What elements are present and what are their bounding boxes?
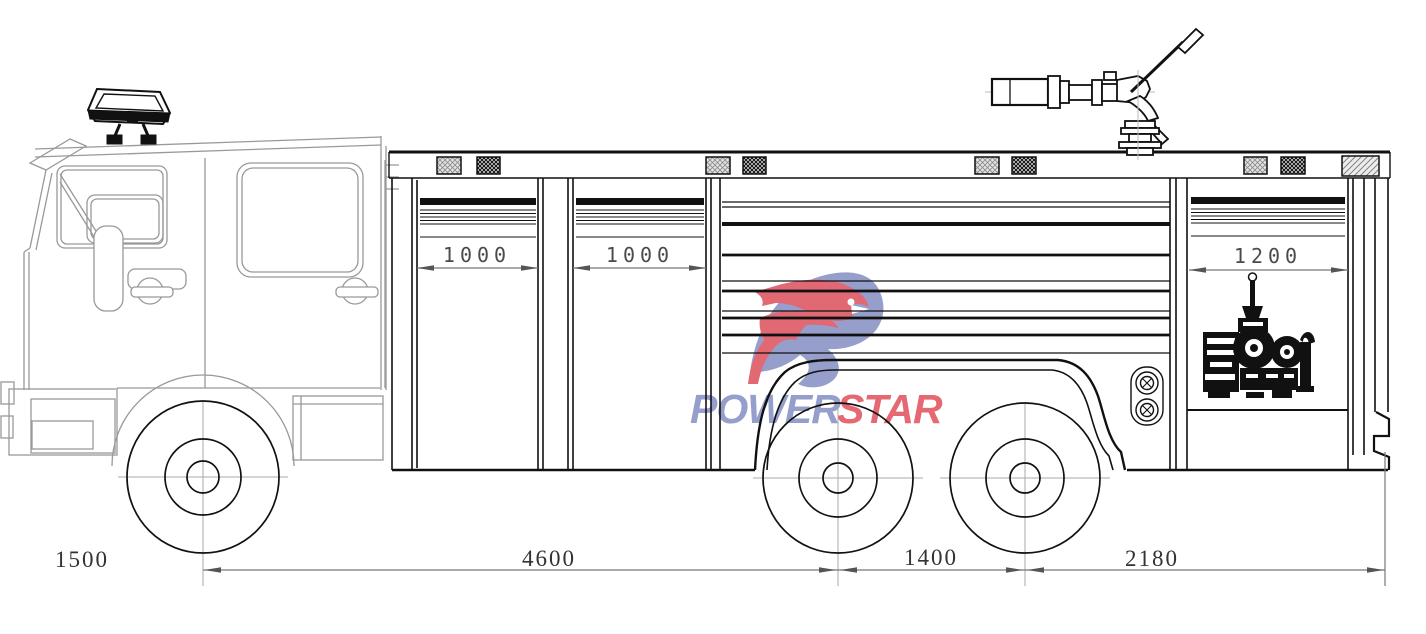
front-bumper bbox=[1, 382, 117, 455]
door-handle-bar bbox=[336, 287, 378, 297]
cab-roof-line bbox=[35, 137, 381, 157]
dimension-axle-spacing-label: 1400 bbox=[904, 545, 958, 570]
monitor-pedestal bbox=[1119, 121, 1168, 155]
roller-shutter-compartment-1 bbox=[420, 198, 536, 237]
marker-lamp-icon bbox=[477, 157, 500, 174]
cab-crew-window-inner bbox=[242, 168, 358, 272]
beacon-light-icon bbox=[88, 89, 170, 144]
wheels bbox=[118, 401, 1110, 586]
dimension-compartment-2-label: 1000 bbox=[606, 243, 674, 267]
door-handle-bar bbox=[131, 287, 173, 297]
marker-lamp-icon bbox=[706, 157, 730, 174]
water-monitor-icon bbox=[985, 29, 1203, 160]
cab-mirror-icon bbox=[94, 226, 123, 311]
rear-corner-hatch-block bbox=[1342, 156, 1379, 176]
dimension-pump-bay-label: 1200 bbox=[1234, 244, 1302, 268]
wheel-centerlines bbox=[118, 402, 1110, 586]
marker-lamps bbox=[437, 156, 1379, 176]
dimension-rear-overhang-label: 2180 bbox=[1125, 546, 1179, 571]
body-top-band bbox=[389, 152, 1390, 178]
marker-lamp-icon bbox=[1244, 157, 1267, 174]
cab-door-split bbox=[117, 158, 380, 388]
cab-a-pillar bbox=[30, 170, 52, 250]
door-step-box bbox=[128, 269, 186, 289]
filler-caps bbox=[1131, 367, 1163, 425]
truck-cab bbox=[1, 136, 399, 466]
cab-front-face bbox=[24, 248, 30, 390]
roller-shutter-pump-bay bbox=[1191, 197, 1345, 236]
watermark-logo: POWER STAR bbox=[690, 272, 943, 432]
marker-lamp-icon bbox=[743, 157, 766, 174]
brand-text-power: POWER bbox=[690, 386, 841, 432]
dimension-front-overhang-label: 1500 bbox=[55, 547, 109, 572]
truck-drawing-canvas: POWER STAR bbox=[0, 0, 1426, 634]
fire-truck-technical-drawing: POWER STAR bbox=[0, 0, 1426, 634]
chassis-box bbox=[293, 396, 383, 460]
marker-lamp-icon bbox=[437, 157, 461, 174]
dimension-wheelbase-label: 4600 bbox=[522, 546, 576, 571]
marker-lamp-icon bbox=[1012, 157, 1036, 174]
marker-lamp-icon bbox=[975, 157, 999, 174]
marker-lamp-icon bbox=[1281, 157, 1305, 174]
fire-pump-icon bbox=[1203, 273, 1315, 398]
roller-shutter-compartment-2 bbox=[576, 198, 704, 237]
dimension-compartment-1-label: 1000 bbox=[443, 243, 511, 267]
monitor-handle-grip bbox=[1178, 29, 1203, 53]
rear-bumper-steps bbox=[1374, 412, 1389, 470]
monitor-handle bbox=[1131, 42, 1183, 92]
cab-crew-window bbox=[237, 163, 363, 277]
